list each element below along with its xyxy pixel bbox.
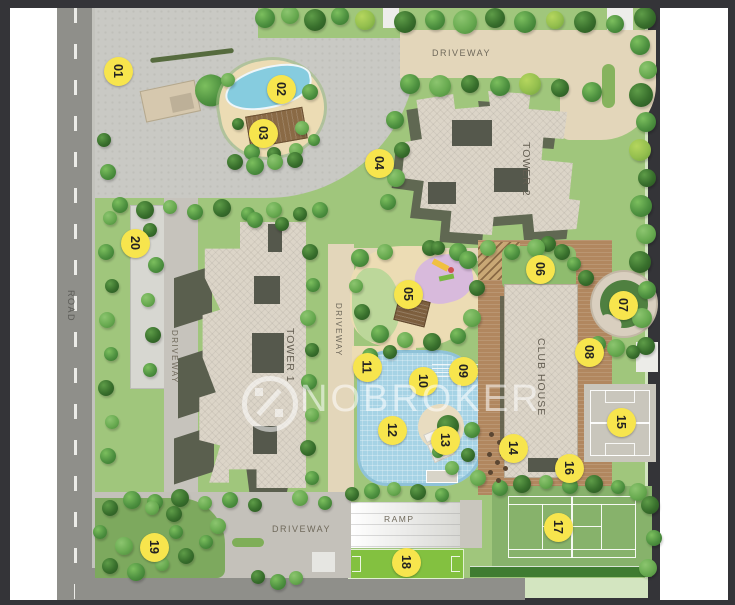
marker-07: 07 [609, 291, 638, 320]
cafe-table [496, 478, 501, 483]
marker-19: 19 [140, 533, 169, 562]
frame-right [728, 0, 735, 605]
cafe-table [489, 432, 494, 437]
cafe-table [503, 466, 508, 471]
marker-02: 02 [267, 75, 296, 104]
marker-13: 13 [431, 426, 460, 455]
marker-03: 03 [249, 119, 278, 148]
nobroker-watermark-text: NOBROKER [300, 378, 541, 421]
ramp-label: RAMP [384, 514, 415, 524]
central-driveway-label: DRIVEWAY [334, 303, 343, 357]
marker-14: 14 [499, 434, 528, 463]
marker-04: 04 [365, 149, 394, 178]
nobroker-logo-icon [242, 376, 298, 432]
cafe-table [488, 470, 493, 475]
west-driveway-label: DRIVEWAY [170, 330, 179, 384]
marker-16: 16 [555, 454, 584, 483]
tower1-label: TOWER 1 [284, 328, 296, 383]
marker-18: 18 [392, 548, 421, 577]
cafe-table [495, 460, 500, 465]
road-label: ROAD [66, 290, 76, 322]
marker-20: 20 [121, 229, 150, 258]
frame-bottom [0, 600, 735, 605]
marker-06: 06 [526, 255, 555, 284]
marker-01: 01 [104, 57, 133, 86]
frame-left [0, 0, 10, 605]
frame-top [0, 0, 735, 8]
marker-08: 08 [575, 338, 604, 367]
marker-15: 15 [607, 408, 636, 437]
top-driveway-label: DRIVEWAY [432, 48, 491, 58]
tower2-label: TOWER 2 [520, 142, 532, 197]
site-plan-image: ROAD DRIVEWAY TOWER 2 DRIVEWAY TOWER 1 [0, 0, 735, 605]
marker-05: 05 [394, 280, 423, 309]
cafe-table [487, 452, 492, 457]
bottom-driveway-label: DRIVEWAY [272, 524, 331, 534]
marker-17: 17 [544, 513, 573, 542]
